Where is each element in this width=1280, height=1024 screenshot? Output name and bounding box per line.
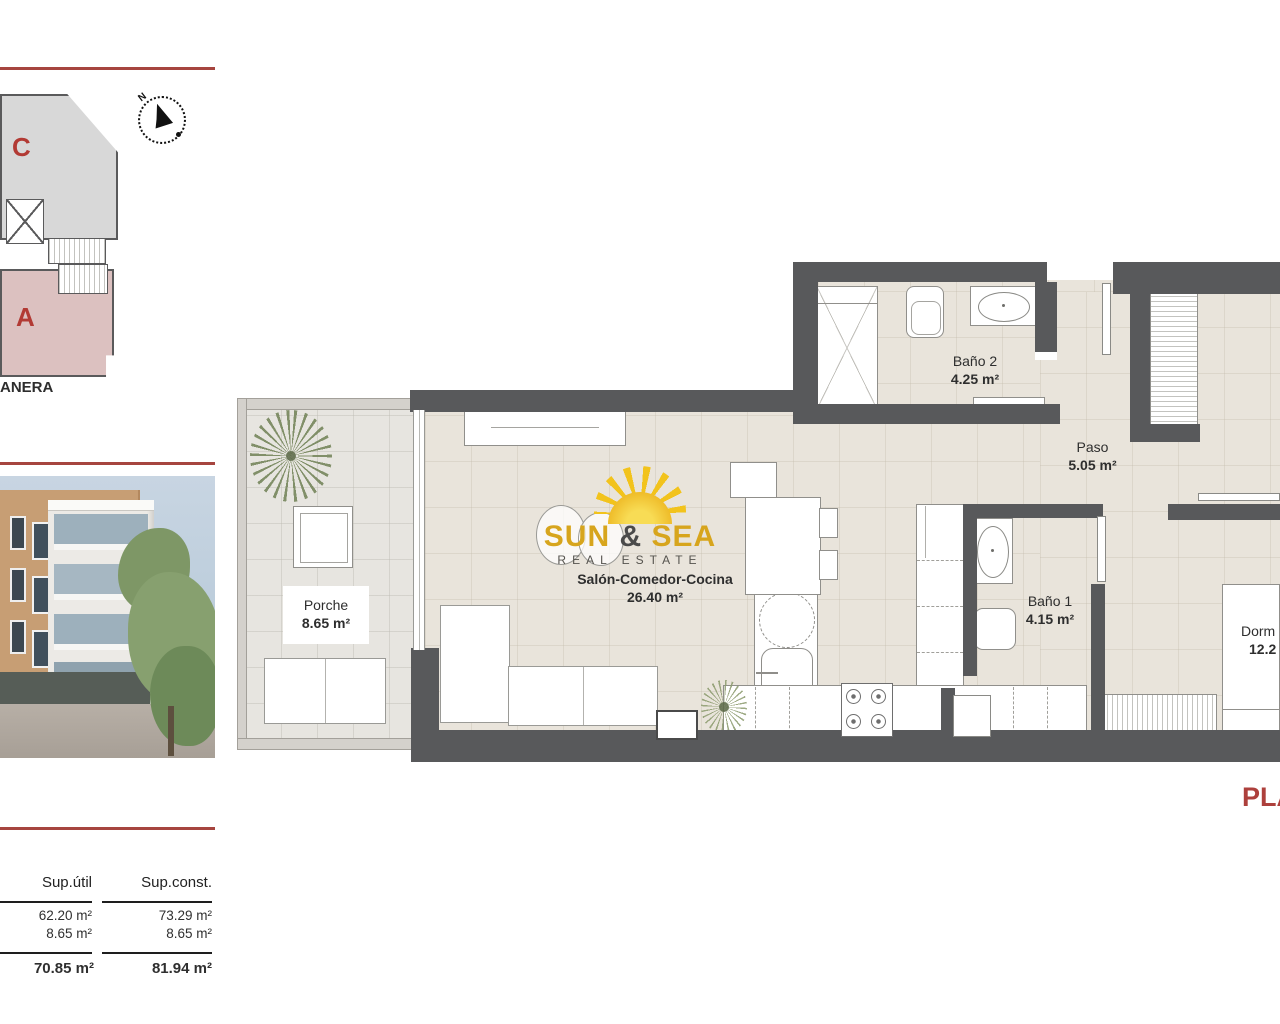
room-label-bano1: Baño 1 4.15 m² xyxy=(1005,592,1095,628)
logo-word-sun: SUN xyxy=(544,520,610,553)
bathroom1-door-leaf xyxy=(1097,516,1106,582)
room-area: 5.05 m² xyxy=(1050,456,1135,474)
palm-plant-icon xyxy=(250,410,332,502)
wall-bathroom2-top xyxy=(793,262,1047,282)
logo-word-sea: SEA xyxy=(652,520,717,553)
washbasin-drain xyxy=(1002,304,1005,307)
room-area: 8.65 m² xyxy=(283,614,369,632)
porch-bench xyxy=(264,658,386,724)
wall-bathroom2-right xyxy=(1035,282,1057,356)
toilet xyxy=(906,286,944,338)
washbasin xyxy=(971,518,1013,584)
room-name: Baño 1 xyxy=(1005,592,1095,610)
floorplan-brochure-page: { "accent": { "line_color": "#a6453f", "… xyxy=(0,0,1280,1024)
sliding-door-bedroom xyxy=(1198,493,1280,501)
wall-bathroom1-left xyxy=(963,504,977,676)
porch-wall-bottom xyxy=(237,738,415,750)
wall-living-top xyxy=(410,390,800,412)
wall-wardrobe-bottom xyxy=(1130,424,1200,442)
room-name: Salón-Comedor-Cocina xyxy=(560,570,750,588)
room-name: Baño 2 xyxy=(920,352,1030,370)
cabinet-divider xyxy=(917,652,963,653)
wall-entry-top xyxy=(1113,262,1280,294)
logo-wordmark: SUN & SEA xyxy=(535,520,725,554)
kitchen-counter xyxy=(723,685,1087,735)
bed xyxy=(1222,584,1280,736)
counter-divider xyxy=(755,687,756,733)
plan-title: PLA xyxy=(1242,782,1280,813)
dining-chair xyxy=(819,550,838,580)
washbasin-bowl xyxy=(978,292,1030,322)
logo-ampersand: & xyxy=(619,520,642,553)
room-label-paso: Paso 5.05 m² xyxy=(1050,438,1135,474)
bed-footboard xyxy=(1223,709,1279,710)
porch-wall-left xyxy=(237,398,247,750)
sideboard xyxy=(464,410,626,446)
dining-chair xyxy=(730,462,777,498)
wall-niche xyxy=(656,710,698,740)
wall-bedroom-top xyxy=(1168,504,1280,520)
wall-bathroom2-bottom xyxy=(793,404,1060,424)
floor-plan: Porche 8.65 m² Baño 2 4.25 m² Paso 5.05 … xyxy=(0,0,1280,1024)
burner-icon xyxy=(871,689,886,704)
bathroom1-lower-door xyxy=(953,695,991,737)
cabinet-divider xyxy=(917,560,963,561)
dining-table xyxy=(745,497,821,595)
washbasin xyxy=(970,286,1036,326)
room-label-salon: Salón-Comedor-Cocina 26.40 m² xyxy=(560,570,750,606)
compass-icon: N xyxy=(138,96,186,144)
wall-bathroom1-top xyxy=(963,504,1103,518)
logo-subtitle: REAL ESTATE xyxy=(535,553,725,567)
cooktop xyxy=(841,683,893,737)
shower-ledge xyxy=(817,303,877,304)
room-label-dormitorio: Dorm 12.2 xyxy=(1241,622,1280,658)
porch-wall-top xyxy=(237,398,413,410)
burner-icon xyxy=(846,689,861,704)
cabinet-divider xyxy=(917,606,963,607)
dining-chair xyxy=(819,508,838,538)
room-name: Paso xyxy=(1050,438,1135,456)
burner-icon xyxy=(871,714,886,729)
kitchen-sink xyxy=(759,592,815,648)
sliding-door-rail xyxy=(419,410,420,650)
sofa-chaise xyxy=(440,605,510,723)
compass-dot xyxy=(176,132,181,137)
sideboard-line xyxy=(491,427,599,428)
room-area: 4.15 m² xyxy=(1005,610,1095,628)
bench-cushion-line xyxy=(325,659,326,723)
porch-table-inner xyxy=(300,513,348,563)
porch-table xyxy=(293,506,353,568)
room-label-bano2: Baño 2 4.25 m² xyxy=(920,352,1030,388)
fridge-line xyxy=(925,506,926,558)
counter-divider xyxy=(1013,687,1014,733)
counter-divider xyxy=(789,687,790,733)
room-area: 26.40 m² xyxy=(560,588,750,606)
room-area: 4.25 m² xyxy=(920,370,1030,388)
sliding-door-porch xyxy=(413,410,425,650)
room-label-porche: Porche 8.65 m² xyxy=(283,596,369,632)
counter-divider xyxy=(1047,687,1048,733)
toilet-seat xyxy=(911,301,941,335)
door-stop xyxy=(1035,352,1057,360)
sofa xyxy=(508,666,658,726)
plant-icon xyxy=(701,680,747,734)
washbasin-drain xyxy=(991,549,994,552)
washbasin-bowl xyxy=(977,526,1009,578)
wardrobe xyxy=(1150,292,1198,428)
shower xyxy=(816,286,878,410)
room-area: 12.2 xyxy=(1241,640,1280,658)
room-name: Dorm xyxy=(1241,622,1280,640)
burner-icon xyxy=(846,714,861,729)
entry-door-leaf xyxy=(1102,283,1111,355)
appliance-handle xyxy=(756,672,778,674)
sofa-cushion-line xyxy=(583,667,584,725)
wall-wardrobe-left xyxy=(1130,294,1150,442)
wall-bathroom2-left xyxy=(793,262,818,412)
room-name: Porche xyxy=(283,596,369,614)
